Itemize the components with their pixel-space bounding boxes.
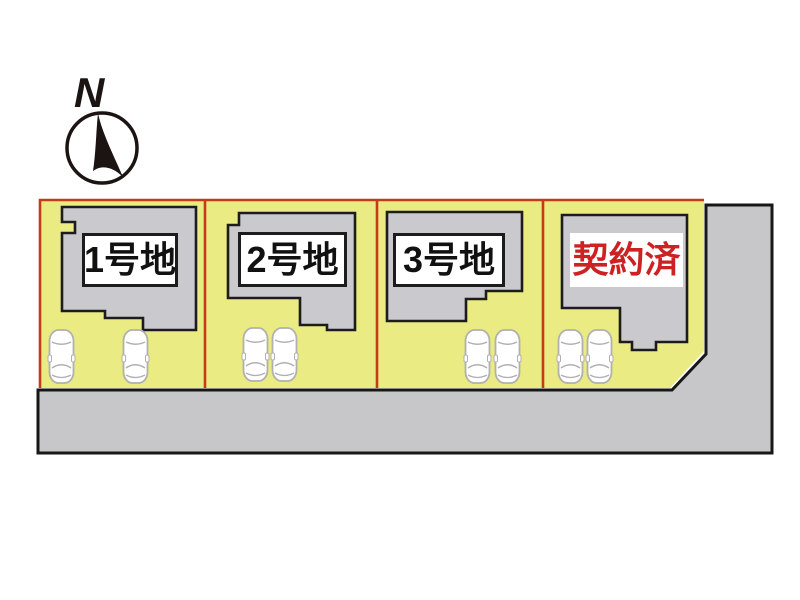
site-plan-drawing bbox=[0, 0, 800, 600]
car-icon bbox=[557, 330, 584, 383]
car-icon bbox=[464, 330, 491, 383]
site-plan-canvas: N 1号地 2号地 3号地 契約済 bbox=[0, 0, 800, 600]
lot-4-sold-label: 契約済 bbox=[570, 233, 683, 287]
car-icon bbox=[242, 328, 269, 381]
compass-needle-icon bbox=[93, 113, 123, 177]
car-icon bbox=[271, 328, 298, 381]
car-icon bbox=[494, 330, 521, 383]
car-icon bbox=[122, 330, 149, 383]
car-icon bbox=[586, 330, 613, 383]
lot-3-label: 3号地 bbox=[393, 233, 505, 287]
compass-north-label: N bbox=[74, 72, 104, 114]
car-icon bbox=[48, 330, 75, 383]
lot-2-label: 2号地 bbox=[238, 232, 347, 287]
lot-1-label: 1号地 bbox=[82, 233, 178, 287]
